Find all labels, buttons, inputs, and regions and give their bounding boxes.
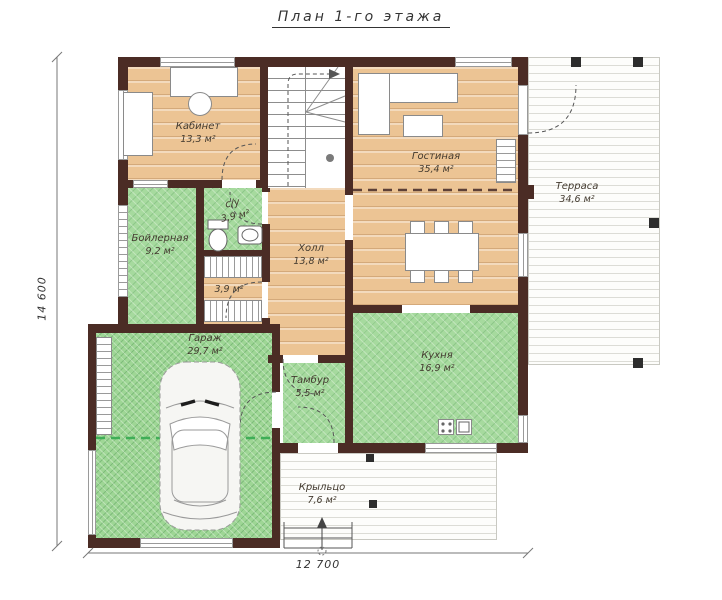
kabinet-sofa <box>123 92 153 156</box>
dimension-line-bottom <box>83 548 533 558</box>
wall-holl-tambur-a <box>268 355 283 363</box>
wall-kuhnya-top-b <box>470 305 518 313</box>
coffee-table <box>403 115 443 137</box>
window-boylernaya-left <box>118 205 128 297</box>
room-boylernaya-floor <box>128 188 196 324</box>
staircase-landing <box>306 140 345 188</box>
gostinaya-sofa-chaise <box>358 73 390 135</box>
room-kuhnya-floor <box>353 313 518 443</box>
floor-plan: План 1-го этажа <box>0 0 722 600</box>
room-su-floor <box>204 188 262 250</box>
dining-table <box>405 233 479 271</box>
wall-right-b <box>518 135 528 233</box>
dimension-label-height: 14 600 <box>36 275 49 323</box>
kitchen-stove <box>438 419 454 435</box>
laundry-counter-bottom <box>204 300 262 322</box>
wall-su-left <box>196 188 204 330</box>
wall-holl-gostinaya-a <box>345 57 353 195</box>
door-gostinaya-terrace <box>518 85 528 135</box>
wall-kabinet-bottom-a <box>118 180 133 188</box>
wall-bottom-b <box>338 443 425 453</box>
desk-chair <box>188 92 212 116</box>
page-title: План 1-го этажа <box>0 6 722 28</box>
dimension-line-left <box>52 52 62 551</box>
staircase-left-flight <box>268 67 306 188</box>
window-kuhnya-bottom <box>425 443 497 453</box>
dining-chair <box>410 270 425 283</box>
wall-spine-c <box>262 318 270 330</box>
wall-kabinet-bottom-c <box>256 180 268 188</box>
garage-gate <box>140 538 233 548</box>
window-kabinet-top <box>160 57 235 67</box>
fireplace <box>496 139 516 183</box>
dining-chair <box>458 270 473 283</box>
porch-column <box>366 454 374 462</box>
dimension-label-width: 12 700 <box>288 558 348 571</box>
room-garazh-floor <box>96 333 272 538</box>
window-kuhnya-right <box>518 415 528 443</box>
room-tambur-floor <box>283 363 345 443</box>
terrace-column <box>571 57 581 67</box>
wall-holl-tambur-b <box>318 355 353 363</box>
page-title-text: План 1-го этажа <box>272 9 451 28</box>
wall-kabinet-bottom-b <box>168 180 222 188</box>
laundry-counter-top <box>204 256 262 278</box>
porch-column <box>369 500 377 508</box>
window-gostinaya-top <box>455 57 512 67</box>
wall-spine-a <box>262 188 270 192</box>
wall-bottom-a <box>272 443 298 453</box>
wall-kabinet-stairs <box>260 57 268 188</box>
wall-chimney-stub <box>520 185 534 199</box>
garage-shelf <box>96 337 112 435</box>
window-gostinaya-right <box>518 233 528 277</box>
terrace-column <box>633 358 643 368</box>
door-boylernaya <box>133 180 168 188</box>
kitchen-sink <box>456 419 472 435</box>
terrace-deck <box>528 57 660 365</box>
terrace-column <box>649 218 659 228</box>
window-garage-left <box>88 450 96 535</box>
porch-deck <box>280 453 497 540</box>
wall-holl-gostinaya-b <box>345 240 353 443</box>
dining-chair <box>434 270 449 283</box>
terrace-column <box>633 57 643 67</box>
wall-garage-top <box>88 324 280 333</box>
wall-kuhnya-top-a <box>353 305 402 313</box>
wall-right-a <box>518 57 528 85</box>
staircase-right-flight <box>306 67 345 140</box>
